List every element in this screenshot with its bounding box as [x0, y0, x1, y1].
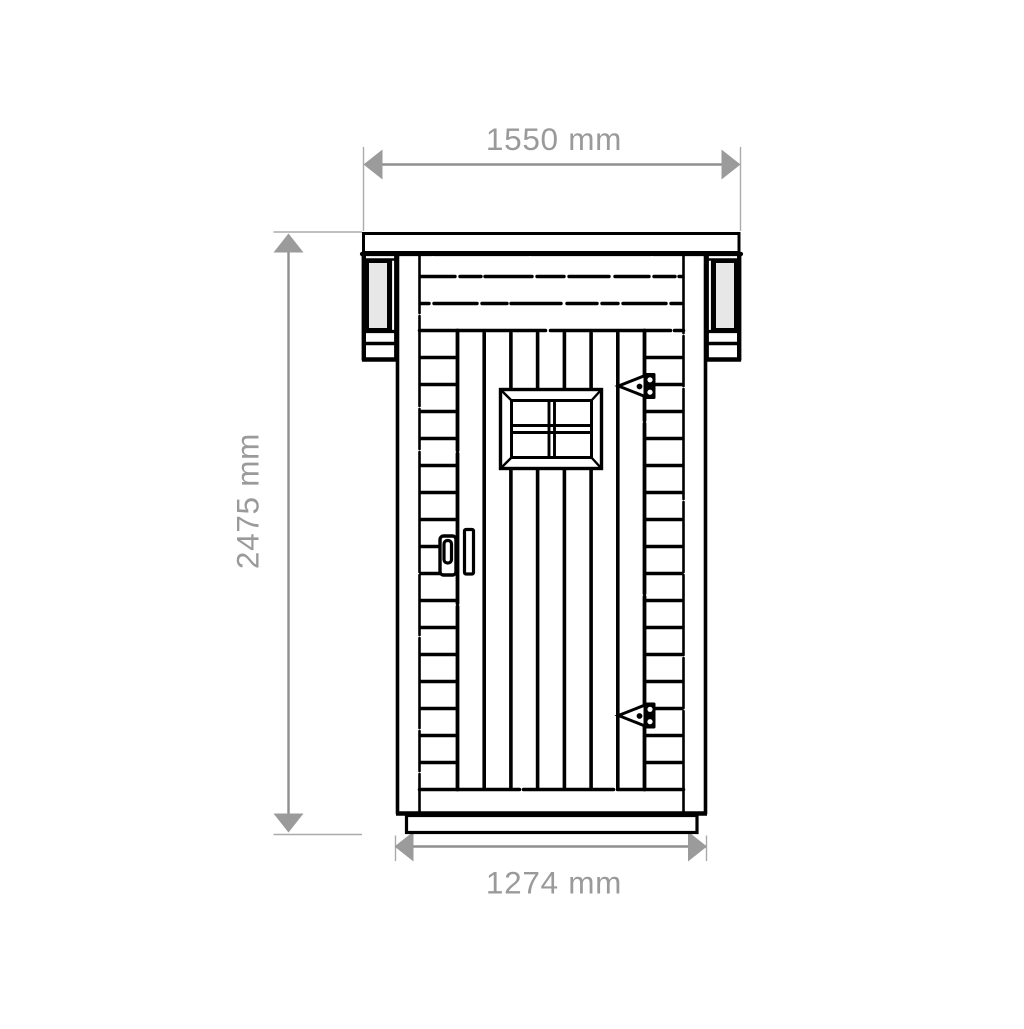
svg-text:1550 mm: 1550 mm [486, 121, 622, 157]
svg-text:1274 mm: 1274 mm [486, 865, 622, 901]
svg-text:2475 mm: 2475 mm [230, 433, 266, 569]
